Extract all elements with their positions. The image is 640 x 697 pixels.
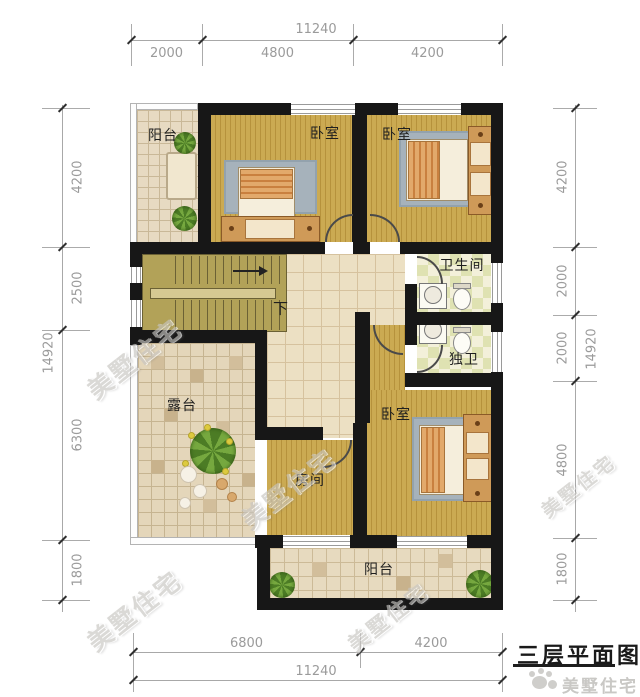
wall-segment bbox=[130, 242, 325, 254]
window bbox=[492, 263, 502, 303]
dim-tick bbox=[42, 247, 90, 248]
dim-left-seg-2: 6300 bbox=[71, 418, 86, 451]
balcony-tile-accent bbox=[312, 562, 326, 576]
balcony-top-parapet bbox=[130, 103, 198, 110]
wall-segment bbox=[255, 535, 283, 548]
bathroom-sink-basin bbox=[424, 286, 442, 304]
room-label-terrace: 露台 bbox=[167, 399, 197, 413]
logo-text: 美墅住宅 bbox=[562, 672, 638, 697]
terrace-tile-accent bbox=[242, 473, 255, 486]
wall-segment bbox=[350, 535, 397, 548]
pebble-icon bbox=[227, 492, 237, 502]
wall-segment bbox=[353, 423, 367, 537]
dim-left-total: 14920 bbox=[42, 332, 57, 373]
toilet-bowl bbox=[453, 288, 471, 310]
wall-segment bbox=[405, 312, 491, 325]
dim-tick bbox=[42, 600, 90, 601]
terrace-tile-accent bbox=[190, 369, 203, 382]
bedroom-c-headboard-panel bbox=[466, 458, 489, 480]
stepping-stone-icon bbox=[180, 466, 197, 483]
terrace-plant-icon bbox=[190, 428, 236, 474]
shrub-icon bbox=[269, 572, 295, 598]
bedroom-b-headboard-panel bbox=[470, 172, 491, 196]
bedroom-b-headboard bbox=[468, 126, 493, 215]
stepping-stone-icon bbox=[193, 484, 207, 498]
dim-tick bbox=[502, 633, 503, 692]
wall-segment bbox=[255, 343, 267, 427]
window bbox=[131, 267, 141, 283]
wall-segment bbox=[491, 372, 503, 610]
room-label-balcony-bottom: 阳台 bbox=[364, 563, 394, 577]
window bbox=[492, 332, 502, 372]
bedroom-a-headboard-panel bbox=[245, 219, 295, 239]
room-label-balcony-top: 阳台 bbox=[148, 129, 178, 143]
dim-right-seg-0: 4200 bbox=[556, 160, 571, 193]
wall-segment bbox=[355, 312, 370, 423]
terrace-tile-accent bbox=[229, 356, 242, 369]
wall-segment bbox=[130, 254, 142, 267]
dim-left-seg-0: 4200 bbox=[71, 160, 86, 193]
ensuite-toilet-bowl bbox=[453, 332, 471, 354]
dim-top-line bbox=[131, 40, 503, 41]
wall-segment bbox=[355, 103, 398, 115]
dim-tick bbox=[42, 108, 90, 109]
knob-icon bbox=[475, 491, 480, 496]
wall-segment bbox=[352, 115, 367, 242]
dim-right-total: 14920 bbox=[585, 328, 600, 369]
dim-tick bbox=[42, 330, 90, 331]
wall-segment bbox=[198, 103, 291, 115]
dim-right-seg-4: 1800 bbox=[556, 552, 571, 585]
stepping-stone-icon bbox=[179, 497, 191, 509]
dim-right-seg-2: 2000 bbox=[556, 331, 571, 364]
knob-icon bbox=[478, 203, 483, 208]
flower-icon bbox=[222, 468, 229, 475]
dim-bottom-line1 bbox=[133, 652, 503, 653]
wall-segment bbox=[467, 535, 503, 548]
dim-left-line bbox=[62, 105, 63, 612]
potted-plant-icon bbox=[172, 206, 197, 231]
wall-segment bbox=[255, 427, 323, 440]
window bbox=[291, 104, 355, 114]
room-label-bathroom: 卫生间 bbox=[440, 259, 485, 273]
room-label-ensuite: 独卫 bbox=[449, 353, 479, 367]
balcony-tile-accent bbox=[438, 554, 452, 568]
flower-icon bbox=[188, 432, 195, 439]
dim-bottom-total: 11240 bbox=[266, 664, 366, 679]
flower-icon bbox=[226, 438, 233, 445]
knob-icon bbox=[478, 132, 483, 137]
terrace-parapet bbox=[130, 537, 257, 545]
wall-segment bbox=[198, 115, 211, 242]
balcony-lounge-mat bbox=[166, 152, 197, 200]
dim-tick bbox=[42, 540, 90, 541]
logo-paw-icon bbox=[546, 671, 552, 677]
wall-segment bbox=[405, 284, 417, 345]
logo-paw-icon bbox=[548, 680, 557, 689]
shrub-icon bbox=[466, 570, 494, 598]
stair-arrow-head-icon bbox=[259, 266, 268, 276]
watermark: 美墅住宅 bbox=[535, 448, 621, 523]
stair-treads-lower bbox=[168, 300, 285, 330]
dim-tick bbox=[502, 24, 503, 66]
dim-top-seg-0: 2000 bbox=[131, 46, 202, 61]
flower-icon bbox=[204, 424, 211, 431]
knob-icon bbox=[229, 226, 234, 231]
dim-bottom-line2 bbox=[133, 680, 503, 681]
room-label-bedroom-a: 卧室 bbox=[310, 127, 340, 141]
wall-segment bbox=[491, 103, 503, 263]
wall-segment bbox=[130, 283, 142, 300]
knob-icon bbox=[307, 226, 312, 231]
window bbox=[283, 536, 350, 546]
title-underline bbox=[513, 664, 615, 667]
window bbox=[397, 536, 467, 546]
knob-icon bbox=[475, 421, 480, 426]
dim-top-seg-1: 4800 bbox=[202, 46, 353, 61]
bedroom-c-headboard-panel bbox=[466, 432, 489, 454]
dim-top-total: 11240 bbox=[266, 22, 366, 37]
window bbox=[398, 104, 461, 114]
floor-plan-canvas: 11240 2000 4800 4200 6800 4200 11240 420… bbox=[0, 0, 640, 697]
bedroom-b-blanket bbox=[408, 141, 440, 199]
dim-right-seg-3: 4800 bbox=[556, 443, 571, 476]
logo-paw-icon bbox=[538, 668, 544, 674]
stair-down-label: 下 bbox=[273, 302, 289, 317]
wall-segment bbox=[491, 303, 503, 332]
balcony-top-parapet bbox=[130, 103, 137, 243]
wall-segment bbox=[353, 242, 370, 254]
bedroom-c-blanket bbox=[421, 427, 445, 493]
logo-paw-icon bbox=[532, 676, 547, 689]
bedroom-b-headboard-panel bbox=[470, 142, 491, 166]
wall-segment bbox=[400, 242, 491, 254]
room-label-bedroom-c: 卧室 bbox=[381, 408, 411, 422]
logo-paw-icon bbox=[529, 671, 535, 677]
stair-direction-arrow bbox=[233, 270, 261, 272]
dim-top-seg-2: 4200 bbox=[353, 46, 502, 61]
terrace-tile-accent bbox=[203, 499, 216, 512]
window bbox=[131, 300, 141, 327]
dim-bottom-seg-0: 6800 bbox=[133, 636, 360, 651]
bedroom-a-blanket bbox=[240, 169, 293, 199]
room-label-bedroom-b: 卧室 bbox=[382, 128, 412, 142]
stair-railing bbox=[150, 288, 276, 299]
wall-segment bbox=[405, 373, 503, 387]
dim-right-seg-1: 2000 bbox=[556, 264, 571, 297]
pebble-icon bbox=[216, 478, 228, 490]
dim-left-seg-1: 2500 bbox=[71, 271, 86, 304]
terrace-tile-accent bbox=[151, 460, 164, 473]
dim-left-seg-3: 1800 bbox=[71, 553, 86, 586]
